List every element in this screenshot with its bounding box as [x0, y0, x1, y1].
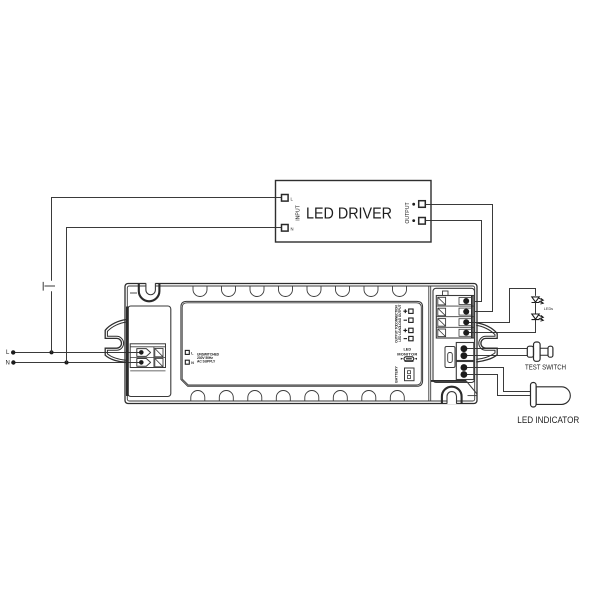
svg-text:TEST SWITCH: TEST SWITCH — [525, 363, 566, 372]
svg-text:OUTPUT: OUTPUT — [405, 202, 411, 224]
svg-text:LED DRIVER: LED DRIVER — [306, 206, 392, 223]
svg-text:LEDs: LEDs — [544, 307, 553, 311]
svg-text:MONITOR: MONITOR — [397, 351, 417, 356]
svg-text:LOAD OUTPUT: LOAD OUTPUT — [398, 304, 402, 326]
svg-text:N: N — [6, 361, 10, 367]
svg-text:N: N — [291, 227, 294, 232]
svg-text:LED LOAD: LED LOAD — [398, 325, 402, 341]
svg-text:L: L — [6, 350, 10, 356]
svg-text:L: L — [291, 197, 294, 202]
svg-text:INPUT: INPUT — [296, 204, 302, 220]
svg-text:AC SUPPLY: AC SUPPLY — [197, 360, 216, 364]
svg-text:L: L — [191, 351, 194, 355]
svg-text:BATTERY: BATTERY — [394, 366, 398, 383]
svg-text:LED INDICATOR: LED INDICATOR — [517, 415, 579, 426]
svg-text:N: N — [191, 361, 194, 365]
